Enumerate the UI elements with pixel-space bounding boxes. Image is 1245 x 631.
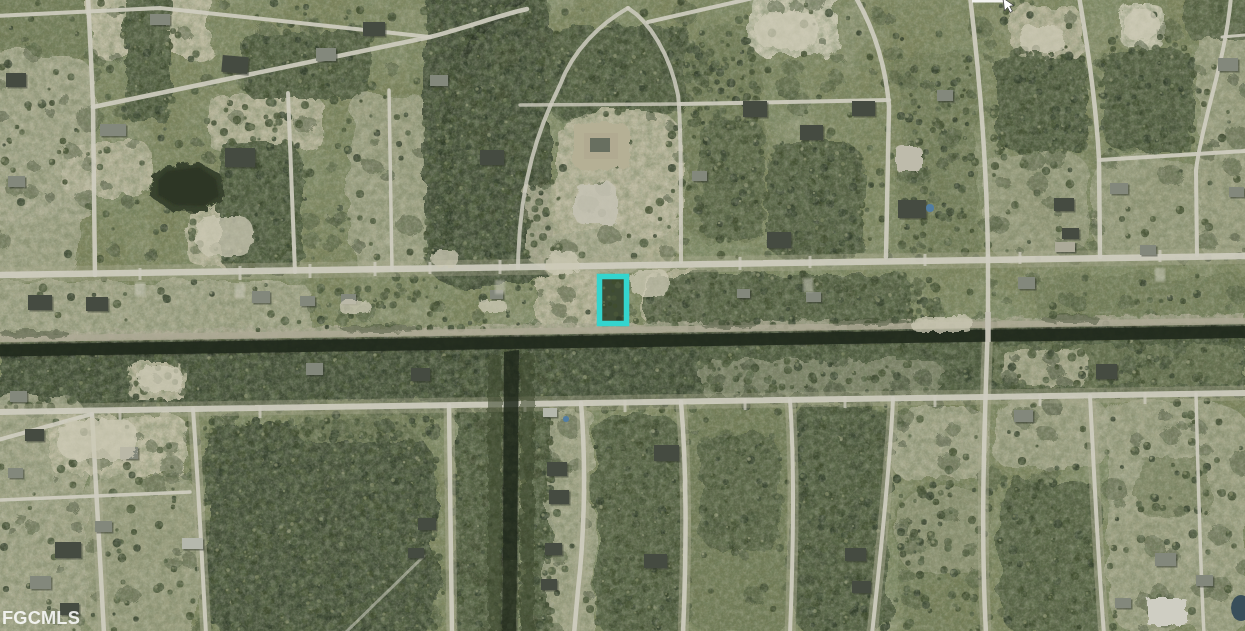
svg-text:FGCMLS: FGCMLS	[2, 608, 80, 628]
